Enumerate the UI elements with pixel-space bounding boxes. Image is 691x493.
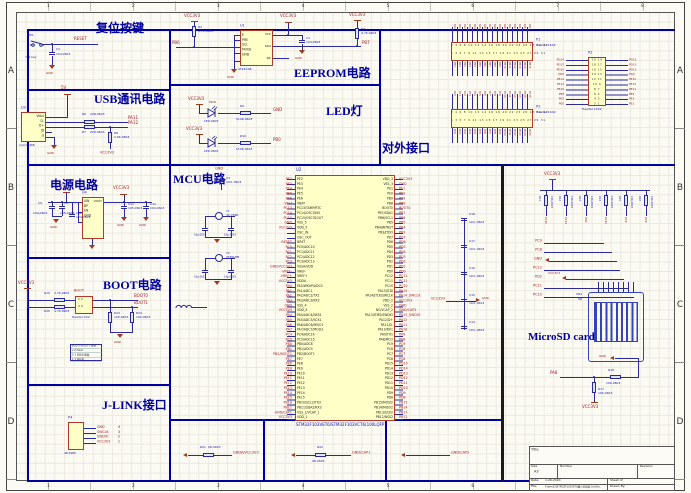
p1-ref: P1: [536, 38, 540, 42]
c14-value: 104, 0603: [469, 329, 484, 332]
r2-value: 4.7K,0603: [198, 30, 213, 33]
boot-mode-table-rows: BOOT0 BOOT1 模式x 0 Flash0 1 系统存储器1 1 SRAM: [71, 344, 102, 362]
gnd-symbol: [117, 334, 123, 338]
vcc3v3-label: VCC3V3: [184, 14, 200, 18]
r11-ref: R11: [538, 196, 541, 201]
wire: [84, 428, 96, 429]
gnd-symbol: [214, 239, 220, 243]
c8-ref: C8: [64, 202, 68, 205]
gnd-label: GND: [46, 72, 53, 75]
titleblock-revision-label: Revision: [640, 465, 653, 468]
wire: [84, 433, 96, 434]
r19-ref: R19: [44, 292, 50, 295]
pa12-net-label: PA12: [128, 121, 138, 125]
wire: [205, 258, 215, 259]
net-label: PC15: [527, 91, 532, 108]
wire: [205, 237, 232, 238]
c2-capacitor[interactable]: [49, 52, 55, 55]
wire: [234, 35, 235, 69]
led-section-title: LED灯: [326, 102, 363, 119]
p3-top-nets: PC0PC1PC2PC3PC4PC5PC6PC7PC8PC9PC10PC11PC…: [452, 91, 532, 108]
wire: [218, 143, 240, 144]
wire: [46, 137, 54, 138]
r13-net: PD2: [584, 217, 587, 223]
p3-pin-numbers-top: 2 4 6 8 10 12 14 16 18 20 22 24 26 28 30…: [451, 111, 533, 114]
r21-resistor[interactable]: [203, 453, 214, 457]
wire: [67, 95, 68, 117]
titleblock-date: 1-26-2020: [545, 479, 561, 482]
wire: [46, 127, 84, 128]
zone-letter: C: [6, 247, 16, 364]
gnd-label: GND: [114, 341, 121, 344]
r3-resistor[interactable]: [355, 28, 359, 39]
power-bar: [285, 22, 292, 23]
gnd-label: GND: [117, 224, 124, 227]
wire: [214, 455, 232, 456]
c14-ref: C14: [469, 321, 475, 324]
wire: [205, 279, 232, 280]
zone-number: 3: [176, 1, 261, 11]
wire: [560, 377, 610, 378]
wire: [46, 122, 84, 123]
wire: [65, 307, 75, 308]
zone-number: 8: [600, 1, 685, 11]
zone-letter: A: [6, 12, 16, 129]
r8-value: 1.5K,0603: [114, 136, 129, 139]
gnd-symbol: [49, 65, 55, 69]
vcc3v3-label: VCC3V3: [582, 405, 598, 409]
u4-ref: U4: [82, 191, 87, 195]
wire: [27, 307, 54, 308]
net-label: GND/CAP2: [451, 451, 469, 455]
boot0-net-label: BOOT0: [134, 294, 148, 298]
p4-ref: P4: [68, 416, 72, 420]
jlink-section-title: J-LINK接口: [102, 396, 167, 413]
u1-ref: U1: [240, 24, 245, 28]
wire: [544, 243, 604, 244]
wire: [251, 143, 271, 144]
wire: [110, 300, 111, 312]
r24-resistor[interactable]: [130, 312, 134, 323]
titleblock-file: F:\stm32\STM32F103VET6最小系统板.SchDoc: [545, 486, 600, 489]
wire: [626, 206, 627, 216]
titleblock-file-label: File:: [531, 485, 537, 488]
c15-value: 104, 0603: [469, 302, 484, 305]
u2-ref: U2: [296, 168, 301, 172]
pb7-net-label: PB7: [362, 41, 370, 45]
pa8-net-label: PA8: [550, 371, 557, 375]
wire: [46, 132, 52, 133]
r8-resistor[interactable]: [108, 132, 112, 143]
r16-ref: R16: [638, 196, 641, 201]
r17-value: 10K,0603: [598, 392, 612, 395]
net-label: VCC3V3: [244, 415, 292, 420]
sw1-ref: SW1: [27, 34, 34, 37]
gnd-symbol: [299, 50, 305, 54]
r20-resistor[interactable]: [54, 305, 65, 309]
r18-value: 10K,0603: [606, 382, 620, 385]
stub-net: PC11: [522, 284, 542, 288]
r17-resistor[interactable]: [592, 382, 596, 393]
r11-value: 10K,0603: [550, 196, 553, 208]
c10-capacitor[interactable]: [69, 214, 75, 217]
zone-number: 7: [515, 1, 600, 11]
r22-ref: R22: [317, 446, 323, 449]
net-label: GND/CAP1: [352, 451, 370, 455]
gnd-port-arrow: [183, 453, 187, 457]
r6-resistor[interactable]: [84, 120, 95, 124]
wire: [231, 258, 232, 270]
stub-net: PC10: [522, 293, 542, 297]
stub-net: PC9: [522, 239, 542, 243]
gnd-port-arrow: [291, 453, 295, 457]
c17-value: 104, 0603: [469, 248, 484, 251]
wire: [78, 222, 82, 223]
zone-number: 1: [6, 1, 91, 11]
gnd-symbol: [231, 69, 237, 73]
wire: [221, 183, 222, 190]
gnd-symbol: [214, 281, 220, 285]
r18-ref: R18: [608, 369, 614, 372]
gnd-symbol: [143, 217, 149, 221]
c1-capacitor[interactable]: [299, 40, 305, 43]
pwr-led-name: PWR: [209, 101, 216, 104]
led-value: LED,0603: [204, 150, 218, 153]
p3-type: Header 16X2: [536, 111, 556, 114]
c12-value: 104,0603: [150, 207, 164, 210]
r15-resistor[interactable]: [624, 195, 628, 206]
r11-resistor[interactable]: [544, 195, 548, 206]
wire: [110, 332, 133, 333]
r9-ref: R9: [240, 105, 244, 108]
section-line: [27, 29, 29, 482]
wire: [446, 301, 464, 302]
gnd-symbol: [121, 217, 127, 221]
title-block-line: [557, 464, 558, 478]
led1-net-label: GND: [273, 108, 282, 112]
wire: [199, 135, 200, 143]
r14-resistor[interactable]: [604, 195, 608, 206]
gnd-port-arrow: [401, 453, 405, 457]
zone-letter: B: [6, 129, 16, 246]
c3-capacitor[interactable]: [218, 179, 224, 182]
wire: [205, 216, 215, 217]
inductor-symbol[interactable]: [176, 303, 192, 310]
section-line: [501, 164, 504, 482]
boot-header-row1: 1 2: [78, 298, 83, 301]
section-line: [385, 419, 387, 481]
wire: [552, 180, 553, 190]
sd-connector-pins: [598, 282, 638, 292]
p1-type: Header 16X2: [536, 44, 556, 47]
r21-value: 0R,0603: [208, 446, 221, 449]
zone-number: 2: [91, 1, 176, 11]
wire: [84, 443, 96, 444]
r10-resistor[interactable]: [240, 141, 251, 145]
c18-ref: C18: [469, 213, 475, 216]
vcc3v3-label: VCC3V3: [280, 14, 296, 18]
p3-pin-numbers-bottom: 1 3 5 7 9 11 13 15 17 19 21 23 25 27 29 …: [451, 119, 533, 122]
wire: [218, 113, 240, 114]
net-label: PD15: [527, 129, 532, 146]
r23-resistor[interactable]: [108, 312, 112, 323]
u1-sda-pin: SDA: [251, 45, 271, 48]
mcu-left-nets: PE2PE3PE4PE5PE6VbatPC13PC14PC15GNDVCC3V3…: [244, 177, 292, 420]
sd-card-slot: [594, 302, 638, 342]
vcc3v3-label: VCC3V3: [188, 97, 204, 101]
reset-section-title: 复位按键: [96, 19, 144, 36]
titleblock-drawn-label: Drawn By:: [610, 485, 625, 488]
zone-number: 4: [261, 1, 346, 11]
u3-type: micro USB: [19, 144, 35, 147]
vcc3v3-label: VCC3V3: [100, 151, 114, 155]
wire: [544, 252, 612, 253]
r13-resistor[interactable]: [584, 195, 588, 206]
wire: [615, 358, 638, 359]
power-bar: [591, 402, 598, 403]
r13-value: 10K,0603: [590, 196, 593, 208]
wire: [586, 206, 587, 216]
led-value: LED,0603: [204, 120, 218, 123]
pin-label: G: [24, 133, 44, 138]
r15-net: PC8: [624, 217, 627, 222]
titleblock-title-label: Title: [531, 448, 539, 452]
wire: [566, 206, 567, 216]
section-line: [169, 84, 381, 86]
wire: [326, 455, 351, 456]
wire: [566, 279, 624, 280]
led2-net-label: PB0: [273, 138, 281, 142]
zone-letter: D: [675, 364, 685, 481]
ext-section-title: 对外接口: [382, 139, 430, 156]
u3-ref: U3: [21, 106, 26, 110]
p2-type: Header 10X2: [582, 108, 602, 111]
wire: [540, 190, 650, 191]
titleblock-size-label: Size: [531, 465, 537, 468]
zone-letter: C: [675, 247, 685, 364]
net-label: PA15: [527, 24, 532, 41]
stub-net: GND: [522, 257, 542, 261]
p1-pin-numbers-bottom: 1 3 5 7 9 11 13 15 17 19 21 23 25 27 29 …: [451, 52, 533, 55]
r18-resistor[interactable]: [610, 375, 621, 379]
r22-resistor[interactable]: [315, 453, 326, 457]
c18-value: 104, 0603: [469, 221, 484, 224]
gnd-label: GND: [50, 226, 57, 229]
r20-ref: R20: [44, 310, 50, 313]
zone-letter: D: [6, 364, 16, 481]
gnd-symbol: [51, 145, 57, 149]
stub-net: PC8: [522, 248, 542, 252]
wire: [27, 289, 28, 307]
reset-net-label: RESET: [74, 37, 87, 41]
section-line: [169, 29, 171, 482]
wire: [176, 47, 240, 48]
wire: [95, 122, 128, 123]
boot-header-row2: 3 4: [78, 305, 83, 308]
c18-capacitor[interactable]: [461, 218, 467, 221]
zone-number: 5: [346, 1, 431, 11]
titleblock-sheet-label: Sheet of: [610, 479, 623, 482]
wire: [84, 438, 96, 439]
section-line: [27, 384, 171, 386]
r16-net: PC9: [644, 217, 647, 222]
r14-net: PC12: [604, 217, 607, 224]
schematic-sheet: 12345678 12345678 ABCD ABCD 复位按键 USB通讯电路…: [0, 0, 691, 493]
titleblock-number-label: Number: [560, 465, 572, 468]
wire: [638, 358, 639, 377]
net-label: PB12: [399, 415, 447, 420]
gnd-label: GND: [47, 152, 54, 155]
r6-value: 22R,0603: [90, 113, 104, 116]
r15-ref: R15: [618, 196, 621, 201]
r12-net: PC11: [564, 217, 567, 224]
titleblock-date-label: Date:: [531, 479, 539, 482]
r20-value: 4.7K,0603: [54, 310, 69, 313]
wire: [93, 300, 138, 301]
gnd-symbol: [89, 245, 95, 249]
c16-capacitor[interactable]: [461, 272, 467, 275]
section-line: [263, 419, 265, 481]
wire: [296, 455, 315, 456]
wire: [27, 300, 54, 301]
r7-ref: R7: [82, 131, 86, 134]
wire: [52, 209, 53, 216]
mcu-part-number: STM32F103VET6/STM32F103VCT6(100LQFP): [296, 423, 386, 427]
r21-ref: R21: [200, 446, 206, 449]
net-label: PE1: [629, 102, 660, 107]
pb6-net-label: PB6: [172, 41, 180, 45]
r11-net: PC10: [544, 217, 547, 224]
vcc3v3-label: VCC3V3: [186, 127, 202, 131]
wire: [594, 393, 595, 402]
p2-pin-number-rows: 20 1918 1716 1514 1312 1110 98 76 54 32 …: [588, 58, 606, 107]
wire: [231, 216, 232, 228]
r9-resistor[interactable]: [240, 111, 251, 115]
u3-pins: VbusD-D+IDG: [24, 114, 44, 139]
stub-net: PD2: [522, 275, 542, 279]
c16-ref: C16: [469, 267, 475, 270]
c16-value: 104, 0603: [469, 275, 484, 278]
gnd-label: GND: [215, 167, 223, 171]
p3-bottom-nets: PD0PD1PD2PD3PD4PD5PD6PD7PD8PD9PD10PD11PD…: [452, 129, 532, 146]
wire: [132, 323, 133, 332]
wire: [95, 127, 128, 128]
vcc3v3-label: VCC3V3: [113, 186, 129, 190]
power-bar: [354, 20, 361, 21]
wire: [273, 46, 361, 47]
titleblock-size: A3: [534, 470, 539, 474]
r12-resistor[interactable]: [564, 195, 568, 206]
p1-bottom-nets: PB0PB1PB2PB3PB4PB5PB6PB7PB8PB9PB10PB11PB…: [452, 62, 532, 79]
wire: [62, 209, 63, 216]
c11-value: 105,0603: [128, 207, 142, 210]
zone-strip-right: ABCD: [675, 12, 685, 481]
r2-resistor[interactable]: [192, 26, 196, 37]
boot-header-type: Header 2X2: [72, 316, 90, 319]
wire: [621, 377, 639, 378]
vcc3v3-label: VCC3V3: [548, 272, 560, 275]
wire: [357, 21, 358, 28]
wire: [188, 455, 203, 456]
wire: [205, 216, 206, 228]
p2-left-nets: PD14PD12PD10PD8PE14PE12PE10PE8PE2PE0: [533, 58, 564, 107]
usb-section-title: USB通讯电路: [94, 90, 165, 107]
c17-capacitor[interactable]: [461, 245, 467, 248]
c14-capacitor[interactable]: [461, 326, 467, 329]
p4-type: 4P,SWD: [64, 452, 76, 455]
stub-net: PC12: [522, 266, 542, 270]
title-block-line: [607, 478, 608, 491]
wire: [110, 143, 111, 149]
push-button-symbol[interactable]: [30, 40, 44, 54]
r16-resistor[interactable]: [644, 195, 648, 206]
wire: [549, 261, 617, 262]
r19-value: 4.7K,0603: [54, 292, 69, 295]
y1-crystal[interactable]: [215, 212, 223, 220]
boot-section-title: BOOT电路: [103, 276, 162, 293]
pwr-led-symbol[interactable]: [208, 109, 218, 117]
wire: [54, 137, 55, 145]
r12-value: 10K,0603: [570, 196, 573, 208]
zone-number: 2: [91, 481, 176, 491]
wire: [406, 455, 450, 456]
eeprom-section-title: EEPROM电路: [294, 64, 371, 81]
zone-number: 1: [6, 481, 91, 491]
zone-number: 4: [261, 481, 346, 491]
r9-value: 510R,0603: [236, 118, 252, 121]
r24-value: 10K,0603: [136, 316, 150, 319]
c9-value: 104,0603: [33, 212, 47, 215]
section-line: [27, 164, 675, 166]
p2-right-nets: PD15PD13PD11PD9PE15PE13PE11PE9PE3PE1: [629, 58, 660, 107]
c2-value: 104,0603: [56, 53, 70, 56]
y2-crystal[interactable]: [215, 254, 223, 262]
r7-resistor[interactable]: [84, 125, 95, 129]
pin-label: PB12/NSS2: [333, 415, 393, 420]
net-label: PE0: [533, 102, 564, 107]
p2-left-stubs: [566, 60, 588, 108]
zone-strip-top: 12345678: [6, 1, 685, 11]
zone-number: 5: [346, 481, 431, 491]
c1-value: 104,0603: [306, 41, 320, 44]
5v-power-label: 5V: [60, 185, 65, 189]
jlink-nets: GNDSWCLKSWDIOVCC3V3: [97, 425, 127, 444]
wire: [646, 206, 647, 216]
wire: [288, 23, 289, 35]
wire: [52, 216, 62, 217]
vcc3v3-label: VCC3V3: [544, 172, 560, 176]
wire: [546, 206, 547, 216]
r14-value: 10K,0603: [610, 196, 613, 208]
wire: [65, 300, 75, 301]
wire: [223, 258, 235, 259]
r19-resistor[interactable]: [54, 298, 65, 302]
zone-number: 6: [430, 1, 515, 11]
wire: [199, 105, 200, 113]
zone-letter: A: [675, 12, 685, 129]
zone-number: 3: [176, 481, 261, 491]
wire: [465, 301, 476, 302]
r22-value: 0R,0603: [312, 460, 325, 463]
r12-ref: R12: [558, 196, 561, 201]
u1-part: AT24C08: [238, 68, 251, 71]
r23-value: 10K,0603: [114, 316, 128, 319]
r10-value: 510R,0603: [236, 148, 252, 151]
wire: [146, 209, 147, 217]
pb0-led-symbol[interactable]: [208, 139, 218, 147]
power-section-title: 电源电路: [50, 176, 98, 193]
gnd-port-arrow: [610, 356, 614, 360]
